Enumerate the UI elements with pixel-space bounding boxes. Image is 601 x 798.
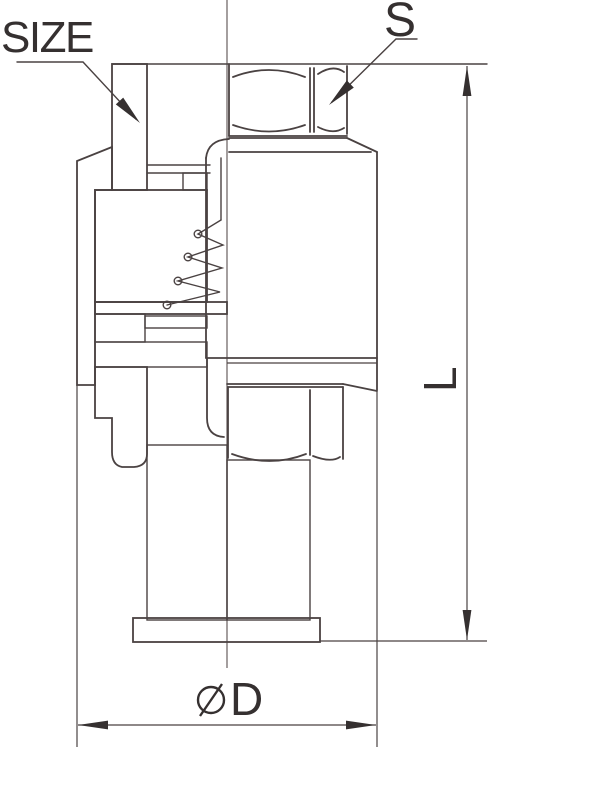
dimension-d-label: D [230, 673, 263, 725]
size-label: SIZE [1, 13, 93, 62]
drawing-canvas: L D SIZE S [0, 0, 601, 798]
background [0, 0, 601, 798]
s-label: S [384, 0, 416, 47]
dimension-l-label: L [414, 366, 466, 392]
technical-drawing: L D SIZE S [0, 0, 601, 798]
